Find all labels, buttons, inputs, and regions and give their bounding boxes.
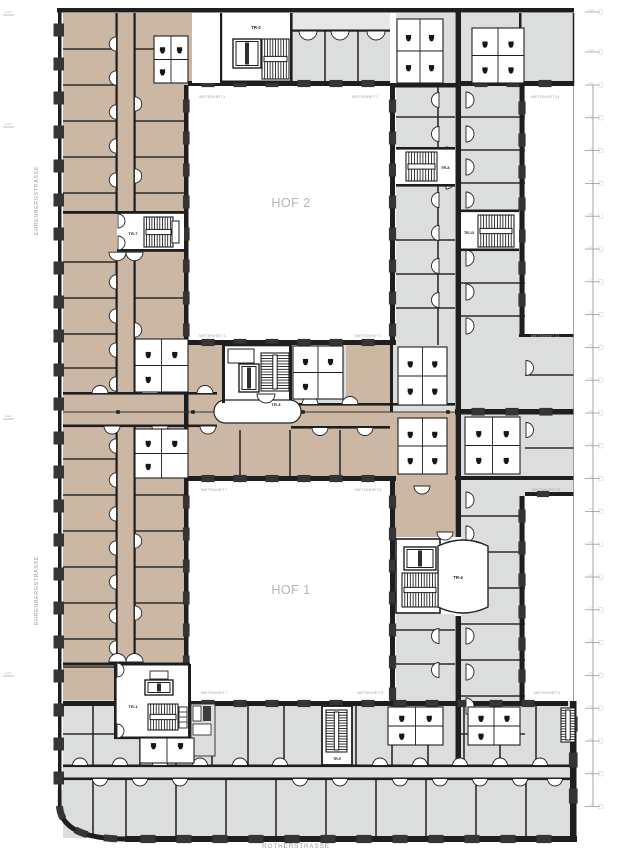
svg-text:MIETEINHEIT 5: MIETEINHEIT 5 xyxy=(534,691,560,695)
svg-text:3,50: 3,50 xyxy=(588,573,594,577)
svg-text:3,50: 3,50 xyxy=(588,507,594,511)
svg-text:3,50: 3,50 xyxy=(588,48,594,52)
svg-text:3,50: 3,50 xyxy=(588,606,594,610)
svg-text:HOF 1: HOF 1 xyxy=(271,583,310,597)
svg-text:MIETEINHEIT 7: MIETEINHEIT 7 xyxy=(201,488,227,492)
svg-text:TR-1: TR-1 xyxy=(129,704,139,709)
svg-text:3,50: 3,50 xyxy=(588,310,594,314)
svg-text:ROTHERSTRASSE: ROTHERSTRASSE xyxy=(262,843,330,850)
svg-text:MIETEINHEIT 13: MIETEINHEIT 13 xyxy=(531,334,559,338)
svg-text:3,50: 3,50 xyxy=(588,245,594,249)
svg-text:EHRENBERGSTRASSE: EHRENBERGSTRASSE xyxy=(34,556,40,625)
svg-text:3,50: 3,50 xyxy=(588,8,594,12)
svg-text:MIETEINHEIT 2: MIETEINHEIT 2 xyxy=(352,95,378,99)
svg-text:3,50: 3,50 xyxy=(588,704,594,708)
svg-text:3,50: 3,50 xyxy=(588,638,594,642)
svg-text:3,50: 3,50 xyxy=(588,278,594,282)
svg-text:TR-5: TR-5 xyxy=(333,757,341,761)
svg-text:3,50: 3,50 xyxy=(588,343,594,347)
svg-text:3,50: 3,50 xyxy=(588,409,594,413)
svg-text:3,50: 3,50 xyxy=(588,770,594,774)
svg-text:MIETEINHEIT 14: MIETEINHEIT 14 xyxy=(531,95,559,99)
svg-text:MIETEINHEIT 7: MIETEINHEIT 7 xyxy=(201,691,227,695)
svg-text:MIETEINHEIT 8: MIETEINHEIT 8 xyxy=(355,488,381,492)
svg-text:3,50: 3,50 xyxy=(588,540,594,544)
svg-text:MIETEINHEIT 4: MIETEINHEIT 4 xyxy=(199,95,225,99)
svg-text:MIETEINHEIT 8: MIETEINHEIT 8 xyxy=(357,691,383,695)
svg-text:3,50: 3,50 xyxy=(588,146,594,150)
svg-text:3,50: 3,50 xyxy=(588,114,594,118)
svg-text:+13,0: +13,0 xyxy=(4,122,12,126)
svg-text:TR-8: TR-8 xyxy=(441,166,449,170)
svg-text:MIETEINHEIT 3: MIETEINHEIT 3 xyxy=(199,334,225,338)
svg-text:+13,0: +13,0 xyxy=(4,671,12,675)
svg-text:TR-13: TR-13 xyxy=(464,231,474,235)
svg-text:+13,0: +13,0 xyxy=(4,10,12,14)
svg-text:TR-7: TR-7 xyxy=(129,231,139,236)
svg-text:TR-3: TR-3 xyxy=(272,402,282,407)
svg-text:3,50: 3,50 xyxy=(588,179,594,183)
svg-text:3,50: 3,50 xyxy=(588,737,594,741)
svg-text:3,50: 3,50 xyxy=(588,802,594,806)
svg-text:3,50: 3,50 xyxy=(588,212,594,216)
svg-text:EHRENBERGSTRASSE: EHRENBERGSTRASSE xyxy=(34,166,40,235)
svg-text:TR-2: TR-2 xyxy=(251,25,261,30)
svg-text:3,50: 3,50 xyxy=(588,474,594,478)
svg-text:3,50: 3,50 xyxy=(588,671,594,675)
svg-text:MIETEINHEIT 2: MIETEINHEIT 2 xyxy=(355,334,381,338)
svg-text:HOF 2: HOF 2 xyxy=(271,196,310,210)
svg-text:TR-4: TR-4 xyxy=(453,575,463,580)
svg-text:3,50: 3,50 xyxy=(588,376,594,380)
svg-text:3,50: 3,50 xyxy=(588,81,594,85)
svg-text:3,50: 3,50 xyxy=(588,442,594,446)
svg-text:+13,0: +13,0 xyxy=(4,414,12,418)
svg-text:MIETEINHEIT 16: MIETEINHEIT 16 xyxy=(532,488,560,492)
